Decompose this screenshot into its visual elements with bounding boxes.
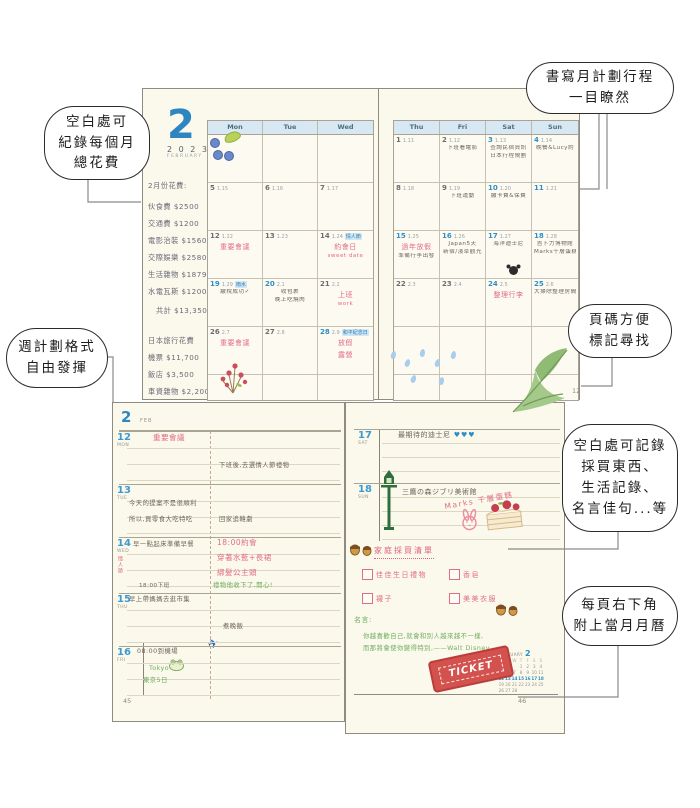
callout-line: 採買東西、 — [581, 457, 659, 478]
raindrop-doodles-icon — [387, 347, 477, 393]
callout-expense-note: 空白處可紀錄每個月總花費 — [44, 106, 150, 180]
callout-page-number: 頁碼方便標記尋找 — [568, 304, 672, 358]
callout-line: 生活記錄、 — [581, 478, 659, 499]
callout-line: 自由發揮 — [26, 358, 88, 379]
blueberry-doodle-icon — [209, 131, 243, 161]
callout-line: 頁碼方便 — [589, 310, 651, 331]
callout-line: 附上當月月曆 — [574, 616, 667, 637]
callout-line: 名言佳句...等 — [572, 499, 668, 520]
callout-line: 紀錄每個月 — [58, 133, 136, 154]
callout-line: 空白處可記錄 — [574, 436, 667, 457]
callout-line: 標記尋找 — [589, 331, 651, 352]
callout-line: 書寫月計劃行程 — [546, 67, 655, 88]
callout-line: 空白處可 — [66, 112, 128, 133]
callout-line: 週計劃格式 — [18, 337, 96, 358]
product-annotation-canvas: 2 2 0 2 3 FEBRUARY 2月份花費:伙食費 $2500交通費 $1… — [0, 0, 700, 808]
callout-monthly-plan: 書寫月計劃行程一目瞭然 — [526, 62, 674, 114]
callout-line: 一目瞭然 — [569, 88, 631, 109]
callout-mini-calendar: 每頁右下角附上當月月曆 — [562, 586, 678, 646]
callout-line: 總花費 — [74, 153, 121, 174]
callout-line: 每頁右下角 — [581, 595, 659, 616]
berry-sprig-doodle-icon — [215, 355, 251, 395]
callout-weekly-format: 週計劃格式自由發揮 — [6, 328, 108, 388]
callout-blank-space: 空白處可記錄採買東西、生活記錄、名言佳句...等 — [562, 424, 678, 532]
